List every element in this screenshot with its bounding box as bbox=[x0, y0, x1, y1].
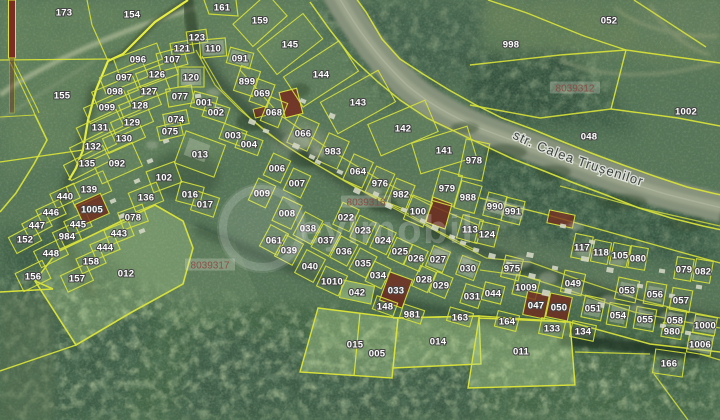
svg-text:035: 035 bbox=[355, 259, 372, 270]
svg-text:155: 155 bbox=[54, 91, 71, 102]
svg-text:110: 110 bbox=[205, 44, 221, 55]
svg-text:003: 003 bbox=[225, 131, 241, 142]
svg-text:013: 013 bbox=[192, 150, 208, 161]
svg-text:443: 443 bbox=[111, 229, 127, 240]
svg-text:097: 097 bbox=[116, 73, 132, 84]
svg-text:1002: 1002 bbox=[675, 107, 697, 118]
svg-text:145: 145 bbox=[282, 40, 299, 51]
svg-text:056: 056 bbox=[647, 290, 663, 301]
svg-text:447: 447 bbox=[29, 221, 45, 232]
svg-text:444: 444 bbox=[97, 243, 114, 254]
svg-text:152: 152 bbox=[17, 235, 33, 246]
svg-text:054: 054 bbox=[610, 311, 627, 322]
svg-text:143: 143 bbox=[350, 98, 366, 109]
svg-text:051: 051 bbox=[585, 304, 602, 315]
svg-text:053: 053 bbox=[619, 286, 635, 297]
svg-text:132: 132 bbox=[85, 142, 101, 153]
svg-text:126: 126 bbox=[149, 70, 165, 81]
svg-text:982: 982 bbox=[393, 190, 409, 201]
svg-text:027: 027 bbox=[430, 255, 446, 266]
svg-text:028: 028 bbox=[416, 275, 432, 286]
svg-text:154: 154 bbox=[124, 10, 141, 21]
svg-text:015: 015 bbox=[347, 340, 364, 351]
svg-text:1010: 1010 bbox=[321, 277, 343, 288]
svg-text:8039317: 8039317 bbox=[191, 261, 230, 272]
svg-text:eyImobil: eyImobil bbox=[300, 208, 474, 252]
svg-text:990: 990 bbox=[487, 202, 503, 213]
svg-text:058: 058 bbox=[667, 316, 683, 327]
svg-text:1000: 1000 bbox=[694, 321, 716, 332]
svg-text:068: 068 bbox=[266, 108, 282, 119]
svg-text:983: 983 bbox=[325, 147, 341, 158]
svg-text:026: 026 bbox=[408, 254, 424, 265]
svg-text:096: 096 bbox=[130, 55, 146, 66]
svg-text:005: 005 bbox=[369, 349, 386, 360]
svg-text:002: 002 bbox=[208, 108, 224, 119]
svg-text:159: 159 bbox=[252, 16, 268, 27]
svg-text:033: 033 bbox=[388, 286, 404, 297]
svg-text:078: 078 bbox=[125, 213, 141, 224]
svg-text:075: 075 bbox=[162, 127, 179, 138]
svg-text:099: 099 bbox=[99, 103, 115, 114]
svg-text:047: 047 bbox=[528, 301, 544, 312]
svg-text:042: 042 bbox=[349, 288, 365, 299]
svg-text:030: 030 bbox=[460, 264, 476, 275]
svg-text:998: 998 bbox=[503, 40, 519, 51]
svg-text:014: 014 bbox=[430, 337, 447, 348]
svg-text:031: 031 bbox=[464, 292, 481, 303]
svg-text:044: 044 bbox=[485, 289, 502, 300]
svg-text:157: 157 bbox=[69, 274, 85, 285]
svg-text:130: 130 bbox=[116, 134, 132, 145]
svg-text:007: 007 bbox=[289, 179, 305, 190]
svg-text:117: 117 bbox=[574, 243, 590, 254]
svg-text:144: 144 bbox=[313, 70, 330, 81]
svg-text:017: 017 bbox=[197, 200, 213, 211]
svg-text:158: 158 bbox=[83, 257, 99, 268]
svg-text:166: 166 bbox=[661, 359, 677, 370]
svg-text:050: 050 bbox=[551, 303, 567, 314]
svg-text:029: 029 bbox=[433, 281, 449, 292]
svg-text:899: 899 bbox=[239, 77, 255, 88]
svg-text:105: 105 bbox=[612, 251, 629, 262]
svg-text:1006: 1006 bbox=[689, 340, 711, 351]
svg-text:131: 131 bbox=[92, 123, 109, 134]
svg-text:446: 446 bbox=[43, 208, 59, 219]
svg-text:161: 161 bbox=[214, 3, 231, 14]
svg-text:064: 064 bbox=[350, 167, 367, 178]
svg-text:012: 012 bbox=[118, 269, 134, 280]
svg-text:448: 448 bbox=[43, 249, 59, 260]
svg-text:142: 142 bbox=[395, 124, 411, 135]
svg-text:057: 057 bbox=[673, 296, 689, 307]
svg-text:129: 129 bbox=[124, 118, 140, 129]
svg-text:091: 091 bbox=[232, 54, 249, 65]
svg-text:164: 164 bbox=[499, 317, 516, 328]
svg-text:8039316: 8039316 bbox=[347, 198, 386, 209]
svg-text:440: 440 bbox=[57, 192, 73, 203]
svg-text:080: 080 bbox=[630, 254, 646, 265]
svg-text:120: 120 bbox=[183, 73, 199, 84]
svg-text:082: 082 bbox=[695, 267, 711, 278]
svg-text:034: 034 bbox=[370, 271, 387, 282]
svg-text:004: 004 bbox=[241, 140, 258, 151]
svg-text:118: 118 bbox=[593, 248, 609, 259]
svg-text:139: 139 bbox=[81, 185, 97, 196]
svg-text:136: 136 bbox=[138, 193, 154, 204]
svg-text:107: 107 bbox=[164, 55, 180, 66]
svg-text:148: 148 bbox=[377, 302, 393, 313]
svg-text:163: 163 bbox=[452, 313, 468, 324]
svg-text:976: 976 bbox=[372, 179, 388, 190]
svg-text:092: 092 bbox=[109, 159, 125, 170]
svg-text:102: 102 bbox=[156, 173, 172, 184]
svg-text:975: 975 bbox=[504, 264, 521, 275]
svg-text:055: 055 bbox=[637, 315, 654, 326]
svg-text:074: 074 bbox=[168, 115, 185, 126]
svg-text:123: 123 bbox=[189, 33, 205, 44]
svg-text:069: 069 bbox=[254, 89, 270, 100]
svg-text:1009: 1009 bbox=[515, 283, 537, 294]
svg-text:988: 988 bbox=[460, 193, 476, 204]
svg-text:980: 980 bbox=[664, 327, 680, 338]
svg-text:006: 006 bbox=[269, 164, 285, 175]
svg-text:016: 016 bbox=[182, 190, 198, 201]
svg-text:984: 984 bbox=[59, 232, 76, 243]
svg-text:1005: 1005 bbox=[81, 205, 103, 216]
svg-text:066: 066 bbox=[295, 129, 311, 140]
svg-text:098: 098 bbox=[107, 87, 123, 98]
svg-text:981: 981 bbox=[404, 310, 421, 321]
svg-text:135: 135 bbox=[79, 159, 96, 170]
svg-text:133: 133 bbox=[544, 324, 560, 335]
svg-text:978: 978 bbox=[466, 156, 482, 167]
svg-text:052: 052 bbox=[601, 16, 617, 27]
svg-text:079: 079 bbox=[676, 265, 692, 276]
svg-text:445: 445 bbox=[70, 220, 87, 231]
svg-text:979: 979 bbox=[439, 184, 455, 195]
svg-text:121: 121 bbox=[174, 44, 191, 55]
svg-text:011: 011 bbox=[513, 347, 529, 358]
svg-text:124: 124 bbox=[479, 230, 496, 241]
svg-text:128: 128 bbox=[132, 101, 148, 112]
svg-text:134: 134 bbox=[575, 327, 592, 338]
svg-text:8039312: 8039312 bbox=[556, 84, 595, 95]
svg-text:040: 040 bbox=[302, 262, 318, 273]
svg-text:127: 127 bbox=[141, 87, 157, 98]
svg-text:141: 141 bbox=[436, 146, 453, 157]
svg-text:156: 156 bbox=[25, 272, 41, 283]
svg-text:049: 049 bbox=[565, 279, 581, 290]
svg-text:048: 048 bbox=[581, 132, 597, 143]
svg-text:991: 991 bbox=[505, 207, 522, 218]
svg-text:077: 077 bbox=[172, 92, 188, 103]
svg-text:173: 173 bbox=[56, 8, 72, 19]
